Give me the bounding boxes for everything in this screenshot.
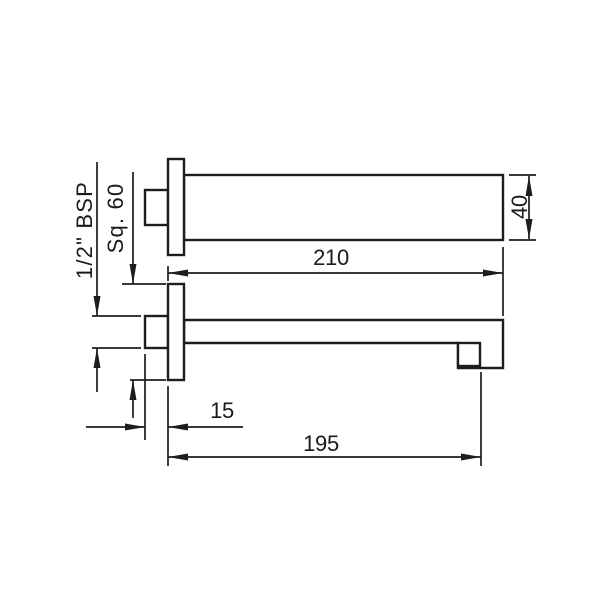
arrow-right-icon [461, 454, 481, 461]
dim-bsp-label: 1/2" BSP [72, 181, 97, 279]
arrow-down-icon [130, 264, 137, 284]
plan-view [145, 159, 503, 255]
arrow-up-icon [94, 348, 101, 368]
dim-40-label: 40 [507, 195, 532, 219]
arrow-right-icon [125, 424, 145, 431]
side-spout-profile [184, 320, 503, 368]
arrow-left-icon [168, 454, 188, 461]
dim-15-label: 15 [210, 398, 234, 423]
plan-thread-connector [145, 190, 168, 225]
side-wall-flange [168, 284, 184, 380]
dim-spout-width: 40 [507, 175, 536, 240]
arrow-left-icon [168, 424, 188, 431]
side-elevation-view [145, 284, 503, 380]
dim-overall-length: 210 [168, 245, 503, 316]
side-outlet-square [458, 343, 480, 366]
side-thread-connector [145, 316, 168, 348]
technical-drawing-canvas: 40 210 1/2" BSP [0, 0, 600, 600]
arrow-right-icon [483, 270, 503, 277]
arrow-up-icon [130, 380, 137, 400]
dim-195-label: 195 [303, 431, 339, 456]
dim-sq60-label: Sq. 60 [103, 183, 128, 254]
drawing-page: 40 210 1/2" BSP [0, 0, 600, 600]
arrow-left-icon [168, 270, 188, 277]
dim-210-label: 210 [313, 245, 349, 270]
plan-spout-body [184, 175, 503, 240]
dim-thread-length: 15 [86, 354, 243, 466]
arrow-up-icon [526, 176, 533, 196]
plan-wall-flange [168, 159, 184, 255]
arrow-down-icon [526, 219, 533, 239]
arrow-down-icon [94, 296, 101, 316]
